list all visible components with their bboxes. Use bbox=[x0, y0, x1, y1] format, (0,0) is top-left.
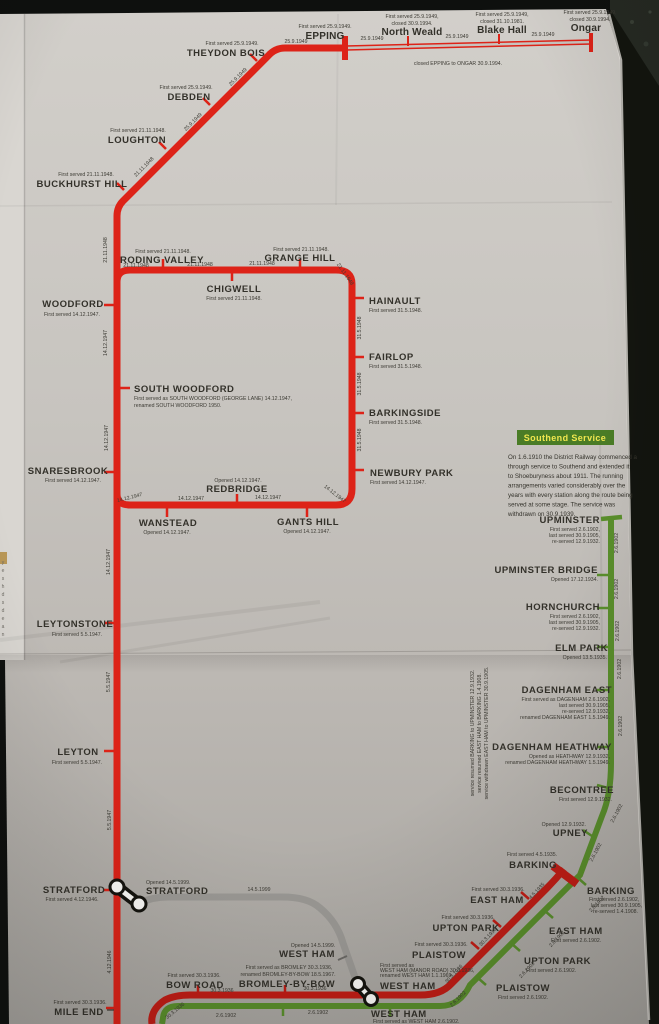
map-canvas: First served 25.9.1949. EPPING First ser… bbox=[0, 0, 659, 1024]
photo-vignette bbox=[0, 0, 659, 1024]
photographed-railway-map: First served 25.9.1949. EPPING First ser… bbox=[0, 0, 659, 1024]
